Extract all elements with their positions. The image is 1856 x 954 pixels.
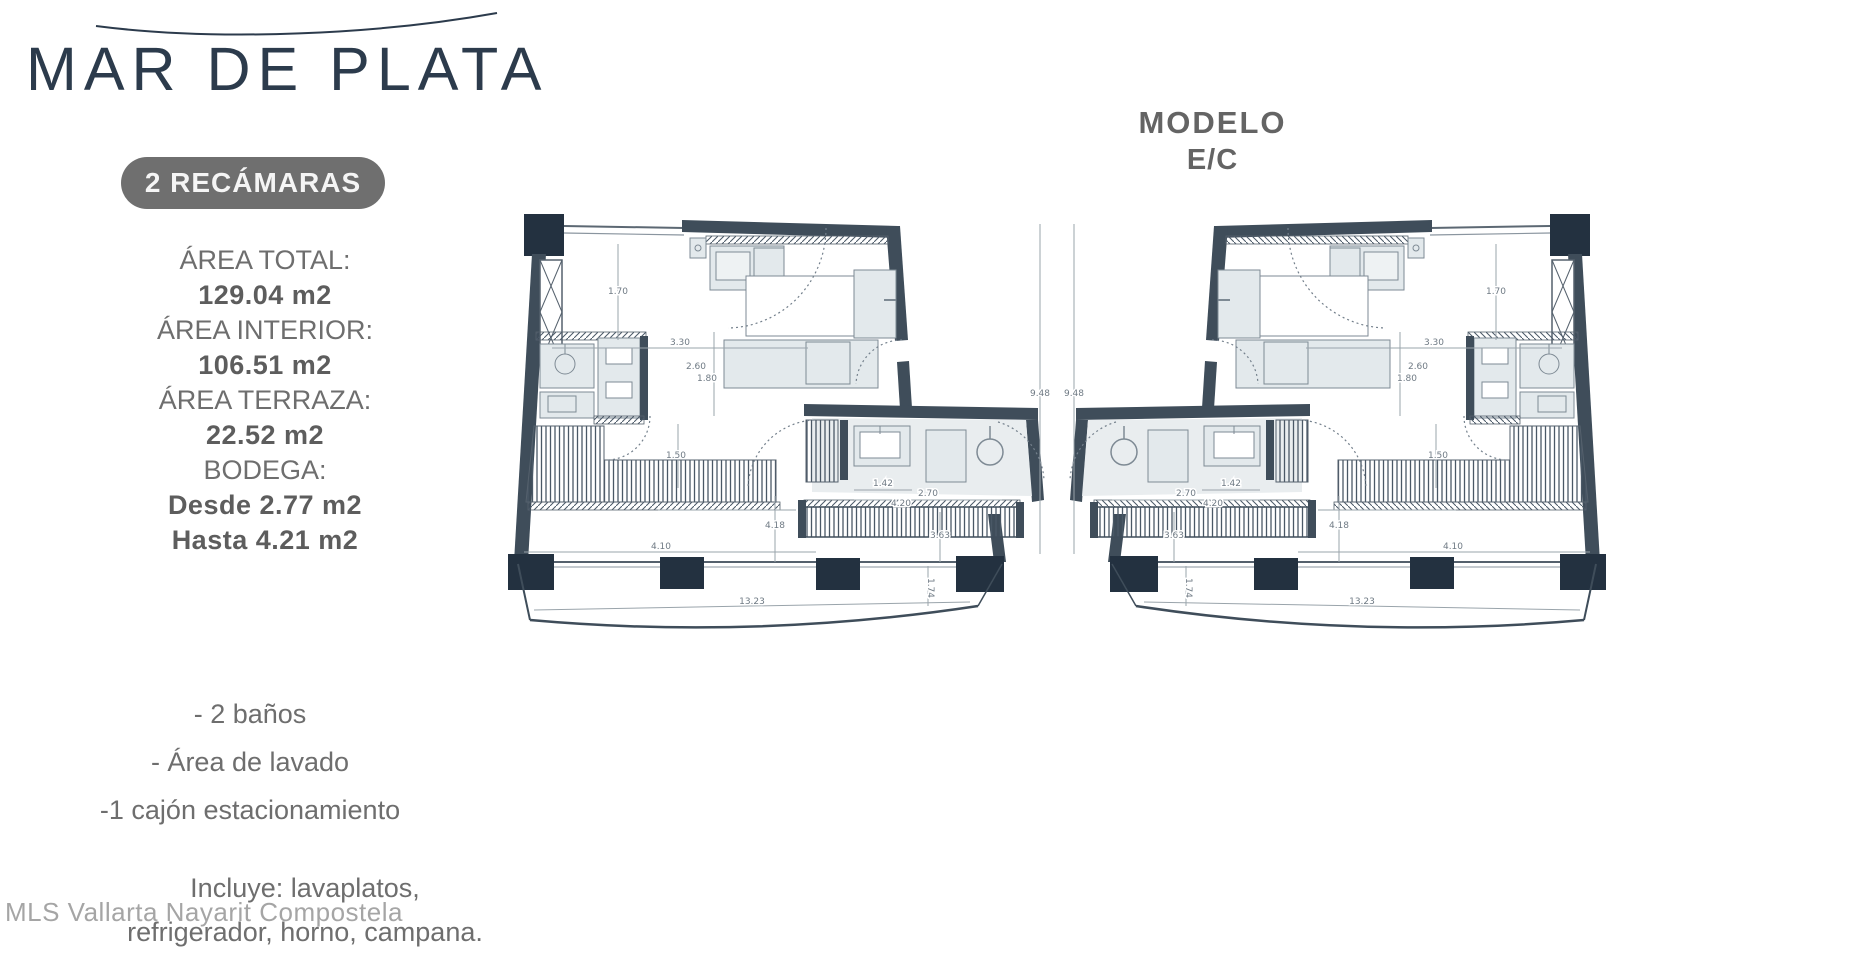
floor-plan-right (1070, 214, 1606, 627)
dimension-label: 13.23 (1349, 597, 1375, 607)
dimension-label: 1.74 (925, 578, 935, 598)
dimension-label: 2.60 (1408, 362, 1428, 372)
dimension-label: 4.20 (1203, 499, 1223, 509)
dimension-label: 1.50 (1428, 451, 1448, 461)
dimension-label: 3.63 (930, 531, 950, 541)
dimension-label: 4.10 (1443, 542, 1463, 552)
dimension-label: 1.42 (1221, 479, 1241, 489)
flyer-page: MAR DE PLATA 2 RECÁMARAS ÁREA TOTAL:129.… (0, 0, 1856, 954)
dimension-label: 2.60 (686, 362, 706, 372)
dimension-label: 3.30 (1424, 338, 1444, 348)
dimension-label: 4.18 (765, 521, 785, 531)
dimension-label: 1.42 (873, 479, 893, 489)
floor-plan-left (508, 214, 1044, 627)
dimension-label: 1.80 (697, 374, 717, 384)
dimension-label: 2.70 (1176, 489, 1196, 499)
dimension-label: 3.63 (1164, 531, 1184, 541)
dimension-label: 3.30 (670, 338, 690, 348)
dimension-label: 4.20 (891, 499, 911, 509)
dimension-label: 9.48 (1064, 389, 1084, 399)
dimension-label: 4.18 (1329, 521, 1349, 531)
dimension-label: 2.70 (918, 489, 938, 499)
dimension-label: 1.70 (608, 287, 628, 297)
dimension-label: 1.74 (1183, 578, 1193, 598)
dimension-label: 4.10 (651, 542, 671, 552)
dimension-label: 1.80 (1397, 374, 1417, 384)
dimension-label: 13.23 (739, 597, 765, 607)
dimension-label: 1.50 (666, 451, 686, 461)
dimension-label: 1.70 (1486, 287, 1506, 297)
dimension-label: 9.48 (1030, 389, 1050, 399)
floor-plan-canvas: 1.703.302.601.801.501.422.709.484.204.18… (0, 0, 1856, 954)
title-swoosh (96, 13, 497, 34)
